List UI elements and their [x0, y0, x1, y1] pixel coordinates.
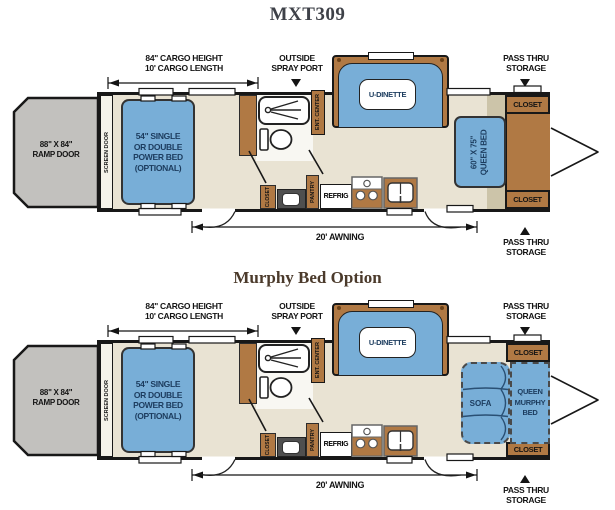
awning-label: 20' AWNING [285, 480, 395, 490]
closet-bottom: CLOSET [505, 190, 550, 209]
closet-top: CLOSET [506, 343, 550, 362]
entertainment-center: ENT. CENTER [311, 90, 325, 135]
pass-thru-top-label2: STORAGE [480, 64, 572, 74]
floorplan-page: { "page_title": "MXT309", "murphy_sectio… [0, 0, 615, 504]
ramp-door-label: 88" X 84" [18, 388, 94, 397]
slideout-latch-icon [337, 58, 341, 62]
screen-door-label: SCREEN DOOR [104, 380, 110, 421]
dinette-table: U-DINETTE [359, 327, 416, 358]
entertainment-center-label: ENT. CENTER [315, 94, 321, 130]
floorplan-standard: 84" CARGO HEIGHT 10' CARGO LENGTH OUTSID… [0, 0, 615, 262]
power-bed-label4: (OPTIONAL) [123, 163, 193, 174]
pass-thru-top-arrow-icon [520, 327, 530, 335]
bath-cabinet [239, 95, 257, 156]
pantry: PANTRY [306, 175, 319, 209]
closet-bottom: CLOSET [506, 442, 550, 457]
entertainment-center: ENT. CENTER [311, 338, 325, 383]
bath-cabinet [239, 343, 257, 404]
dinette-window [368, 52, 414, 60]
closet-top-label: CLOSET [513, 100, 542, 109]
bath-closet-label: CLOSET [265, 187, 271, 207]
outside-spray-port-label2: SPRAY PORT [252, 312, 342, 322]
queen-murphy-bed: QUEEN MURPHY BED [510, 362, 550, 444]
spray-port-arrow-icon [291, 79, 301, 87]
pass-thru-bottom-arrow-icon [520, 475, 530, 483]
bath-vanity [277, 189, 306, 209]
bath-closet: CLOSET [260, 433, 276, 457]
screen-door: SCREEN DOOR [100, 95, 113, 209]
refrigerator: REFRIG [320, 184, 352, 209]
pantry: PANTRY [306, 423, 319, 457]
power-bed: 54" SINGLE OR DOUBLE POWER BED (OPTIONAL… [121, 99, 195, 205]
refrigerator: REFRIG [320, 432, 352, 457]
power-bed-label: 54" SINGLE [123, 379, 193, 390]
pantry-label: PANTRY [310, 181, 316, 203]
bath-closet: CLOSET [260, 185, 276, 209]
cargo-length-label: 10' CARGO LENGTH [110, 64, 258, 74]
queen-bed: 60" X 75" QUEEN BED [454, 116, 506, 188]
vanity-sink [282, 441, 300, 454]
dinette-table: U-DINETTE [359, 79, 416, 110]
bath-closet-label: CLOSET [265, 435, 271, 455]
refrigerator-label: REFRIG [324, 441, 349, 448]
u-dinette-label: U-DINETTE [369, 338, 406, 347]
power-bed-label4: (OPTIONAL) [123, 411, 193, 422]
u-dinette-label: U-DINETTE [369, 90, 406, 99]
power-bed-label: 54" SINGLE [123, 131, 193, 142]
power-bed: 54" SINGLE OR DOUBLE POWER BED (OPTIONAL… [121, 347, 195, 453]
hitch-icon [551, 376, 598, 424]
cargo-length-label: 10' CARGO LENGTH [110, 312, 258, 322]
ramp-door-label2: RAMP DOOR [18, 398, 94, 407]
slideout-latch-icon [337, 306, 341, 310]
outside-spray-port-label2: SPRAY PORT [252, 64, 342, 74]
awning-label: 20' AWNING [285, 232, 395, 242]
ramp-door-label: 88" X 84" [18, 140, 94, 149]
queen-bed-label: 60" X 75" [470, 129, 480, 175]
hitch-icon [551, 128, 598, 176]
pass-thru-bottom-arrow-icon [520, 227, 530, 235]
ramp-door-label2: RAMP DOOR [18, 150, 94, 159]
murphy-bed-label3: BED [515, 408, 546, 419]
bath-vanity [277, 437, 306, 457]
murphy-bed-label: QUEEN [515, 387, 546, 398]
vanity-sink [282, 193, 300, 206]
pass-thru-top-label2: STORAGE [480, 312, 572, 322]
slideout-latch-icon [440, 58, 444, 62]
sofa-label: SOFA [470, 399, 492, 408]
pass-thru-bottom-label2: STORAGE [480, 496, 572, 506]
power-bed-label3: POWER BED [123, 400, 193, 411]
pass-thru-top-arrow-icon [520, 79, 530, 87]
screen-door-label: SCREEN DOOR [104, 132, 110, 173]
murphy-bed-label2: MURPHY [515, 398, 546, 409]
shower [258, 96, 310, 125]
closet-bottom-label: CLOSET [514, 445, 543, 454]
sofa: SOFA [461, 362, 510, 444]
dinette-window [368, 300, 414, 308]
power-bed-label3: POWER BED [123, 152, 193, 163]
closet-top-label: CLOSET [514, 348, 543, 357]
screen-door: SCREEN DOOR [100, 343, 113, 457]
refrigerator-label: REFRIG [324, 193, 349, 200]
pantry-label: PANTRY [310, 429, 316, 451]
entertainment-center-label: ENT. CENTER [315, 342, 321, 378]
queen-bed-label2: QUEEN BED [480, 129, 490, 175]
floorplan-murphy: 84" CARGO HEIGHT 10' CARGO LENGTH OUTSID… [0, 248, 615, 510]
shower [258, 344, 310, 373]
power-bed-label2: OR DOUBLE [123, 390, 193, 401]
power-bed-label2: OR DOUBLE [123, 142, 193, 153]
closet-top: CLOSET [505, 95, 550, 114]
spray-port-arrow-icon [291, 327, 301, 335]
closet-bottom-label: CLOSET [513, 195, 542, 204]
slideout-latch-icon [440, 306, 444, 310]
